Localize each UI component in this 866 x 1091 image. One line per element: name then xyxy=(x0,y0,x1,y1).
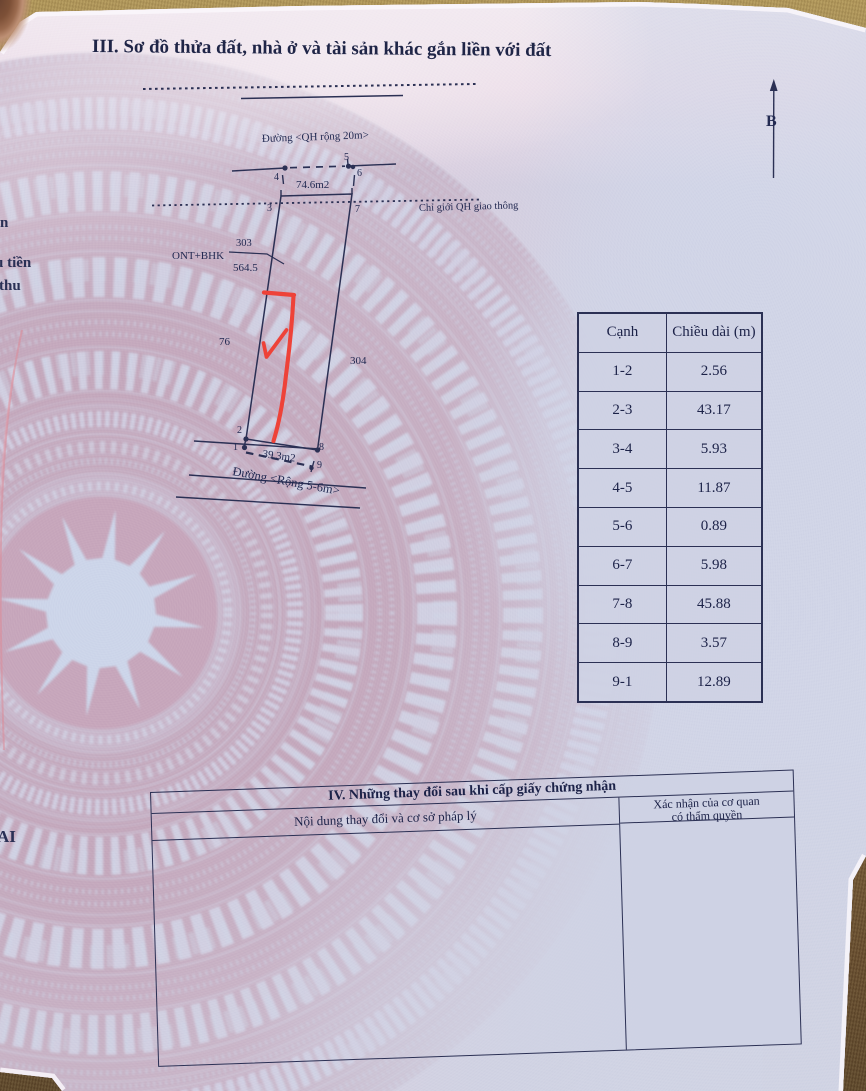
svg-text:5: 5 xyxy=(344,152,349,163)
svg-text:Đường <QH rộng 20m>: Đường <QH rộng 20m> xyxy=(262,129,369,145)
svg-text:4: 4 xyxy=(274,172,279,183)
svg-text:B: B xyxy=(766,113,777,130)
svg-text:6: 6 xyxy=(357,168,362,179)
svg-text:76: 76 xyxy=(219,336,231,348)
svg-text:8: 8 xyxy=(319,442,324,453)
svg-text:74.6m2: 74.6m2 xyxy=(296,179,329,191)
svg-text:303: 303 xyxy=(236,238,252,249)
svg-text:564.5: 564.5 xyxy=(233,262,258,274)
svg-text:ONT+BHK: ONT+BHK xyxy=(172,250,224,262)
svg-text:1: 1 xyxy=(233,442,238,453)
svg-text:7: 7 xyxy=(355,204,360,215)
svg-text:Chỉ giới QH giao thông: Chỉ giới QH giao thông xyxy=(419,200,519,214)
svg-text:9: 9 xyxy=(317,460,322,471)
svg-text:39.3m2: 39.3m2 xyxy=(262,448,297,465)
svg-text:3: 3 xyxy=(267,203,272,214)
svg-text:Đường <Rộng 5-6m>: Đường <Rộng 5-6m> xyxy=(231,464,340,498)
svg-text:2: 2 xyxy=(237,425,242,436)
svg-text:304: 304 xyxy=(350,355,367,367)
